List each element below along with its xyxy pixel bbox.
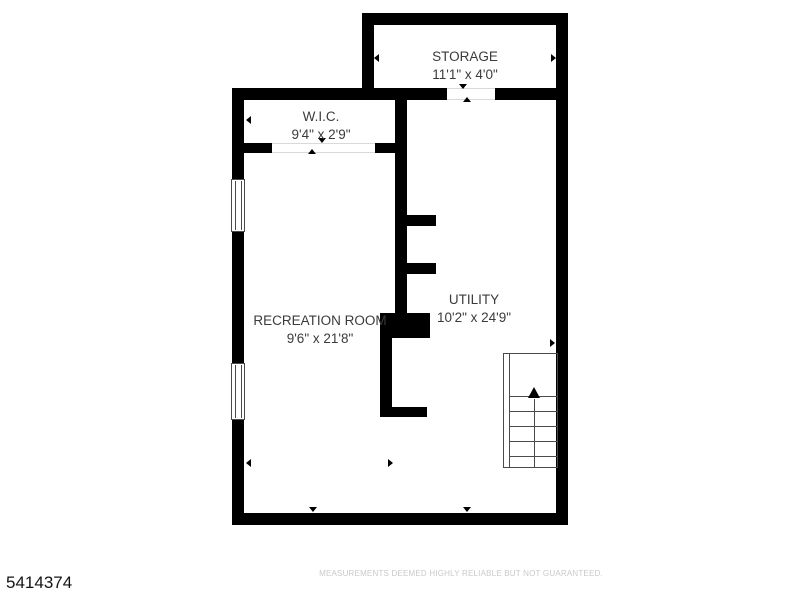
dim-arrow-utility-right-icon (550, 339, 555, 347)
room-label-utility: UTILITY 10'2" x 24'9" (437, 291, 511, 327)
floor-plan: STORAGE 11'1" x 4'0" W.I.C. 9'4" x 2'9" … (0, 0, 800, 600)
wall-top-right-segment (495, 88, 568, 100)
dim-arrow-storage-top-icon (460, 20, 468, 25)
wall-stub-lower (407, 263, 436, 274)
disclaimer-text: MEASUREMENTS DEEMED HIGHLY RELIABLE BUT … (319, 569, 603, 578)
dim-arrow-utility-top-icon (463, 97, 471, 102)
room-dimensions: 10'2" x 24'9" (437, 309, 511, 327)
wall-wic-bottom-left (232, 143, 272, 153)
dim-arrow-storage-bottom-icon (459, 84, 467, 89)
room-dimensions: 11'1" x 4'0" (432, 66, 498, 84)
stair-flight (509, 353, 558, 468)
storage-door-opening (447, 88, 495, 100)
wall-storage-left (362, 13, 374, 100)
dim-arrow-rec-right-icon (388, 459, 393, 467)
room-dimensions: 9'6" x 21'8" (253, 330, 386, 348)
wall-bottom (232, 513, 568, 525)
dim-arrow-utility-bottom-icon (463, 507, 471, 512)
stair-center-line (534, 399, 535, 467)
window-pane (235, 365, 242, 418)
wall-closet-bottom (380, 407, 427, 417)
dim-arrow-wic-top-icon (318, 93, 326, 98)
room-name: W.I.C. (291, 108, 350, 126)
wall-left (232, 88, 244, 525)
dim-arrow-rec-bottom-icon (309, 507, 317, 512)
dim-arrow-storage-left-icon (374, 54, 379, 62)
wall-stub-upper (407, 215, 436, 226)
dim-arrow-rec-left-icon (246, 459, 251, 467)
wall-middle-vertical (395, 100, 407, 313)
listing-number: 5414374 (6, 573, 72, 593)
room-name: UTILITY (437, 291, 511, 309)
dim-arrow-wic-left-icon (246, 116, 251, 124)
room-dimensions: 9'4" x 2'9" (291, 126, 350, 144)
room-label-wic: W.I.C. 9'4" x 2'9" (291, 108, 350, 144)
room-name: STORAGE (432, 48, 498, 66)
window-upper (231, 179, 245, 232)
dim-arrow-storage-right-icon (551, 54, 556, 62)
wic-door-opening (272, 143, 375, 153)
room-label-recreation: RECREATION ROOM 9'6" x 21'8" (253, 312, 386, 348)
wall-closet-left (380, 338, 392, 417)
dim-arrow-rec-top-icon (308, 149, 316, 154)
window-lower (231, 363, 245, 420)
room-label-storage: STORAGE 11'1" x 4'0" (432, 48, 498, 84)
staircase (503, 353, 558, 468)
stairs-up-arrow-icon (528, 387, 540, 398)
room-name: RECREATION ROOM (253, 312, 386, 330)
dim-arrow-wic-right-icon (396, 116, 401, 124)
window-pane (235, 181, 242, 230)
wall-top-left-segment (232, 88, 447, 100)
chimney-block (380, 313, 430, 338)
